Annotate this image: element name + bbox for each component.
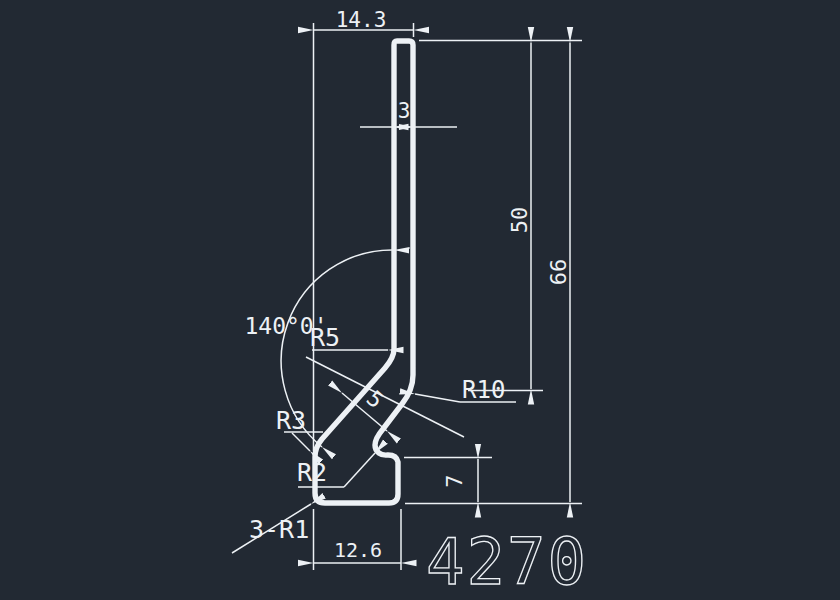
dim-label-thickness: 3: [398, 99, 411, 123]
dim-label-3r1: 3-R1: [249, 515, 309, 544]
leader-r10: [415, 394, 460, 402]
dim-label-r2: R2: [297, 458, 327, 487]
dim-label-total-height: 66: [546, 259, 571, 286]
cad-drawing-canvas: 14.3 3 50 66 140°0' R5 R10 5 R3 R2 3-R1 …: [0, 0, 840, 600]
dim-label-r10: R10: [462, 376, 505, 404]
dim-label-blade-height: 50: [507, 207, 532, 234]
dim-label-top-width: 14.3: [336, 8, 387, 32]
leader-r2: [344, 453, 375, 487]
dim-label-foot-width: 12.6: [334, 538, 382, 562]
dim-label-r5: R5: [310, 323, 340, 352]
part-number: 4270: [426, 525, 588, 599]
leader-r3: [292, 433, 310, 451]
dim-label-r3: R3: [276, 406, 306, 435]
dim-label-foot-height: 7: [442, 474, 467, 487]
cad-drawing: 14.3 3 50 66 140°0' R5 R10 5 R3 R2 3-R1 …: [0, 0, 840, 600]
